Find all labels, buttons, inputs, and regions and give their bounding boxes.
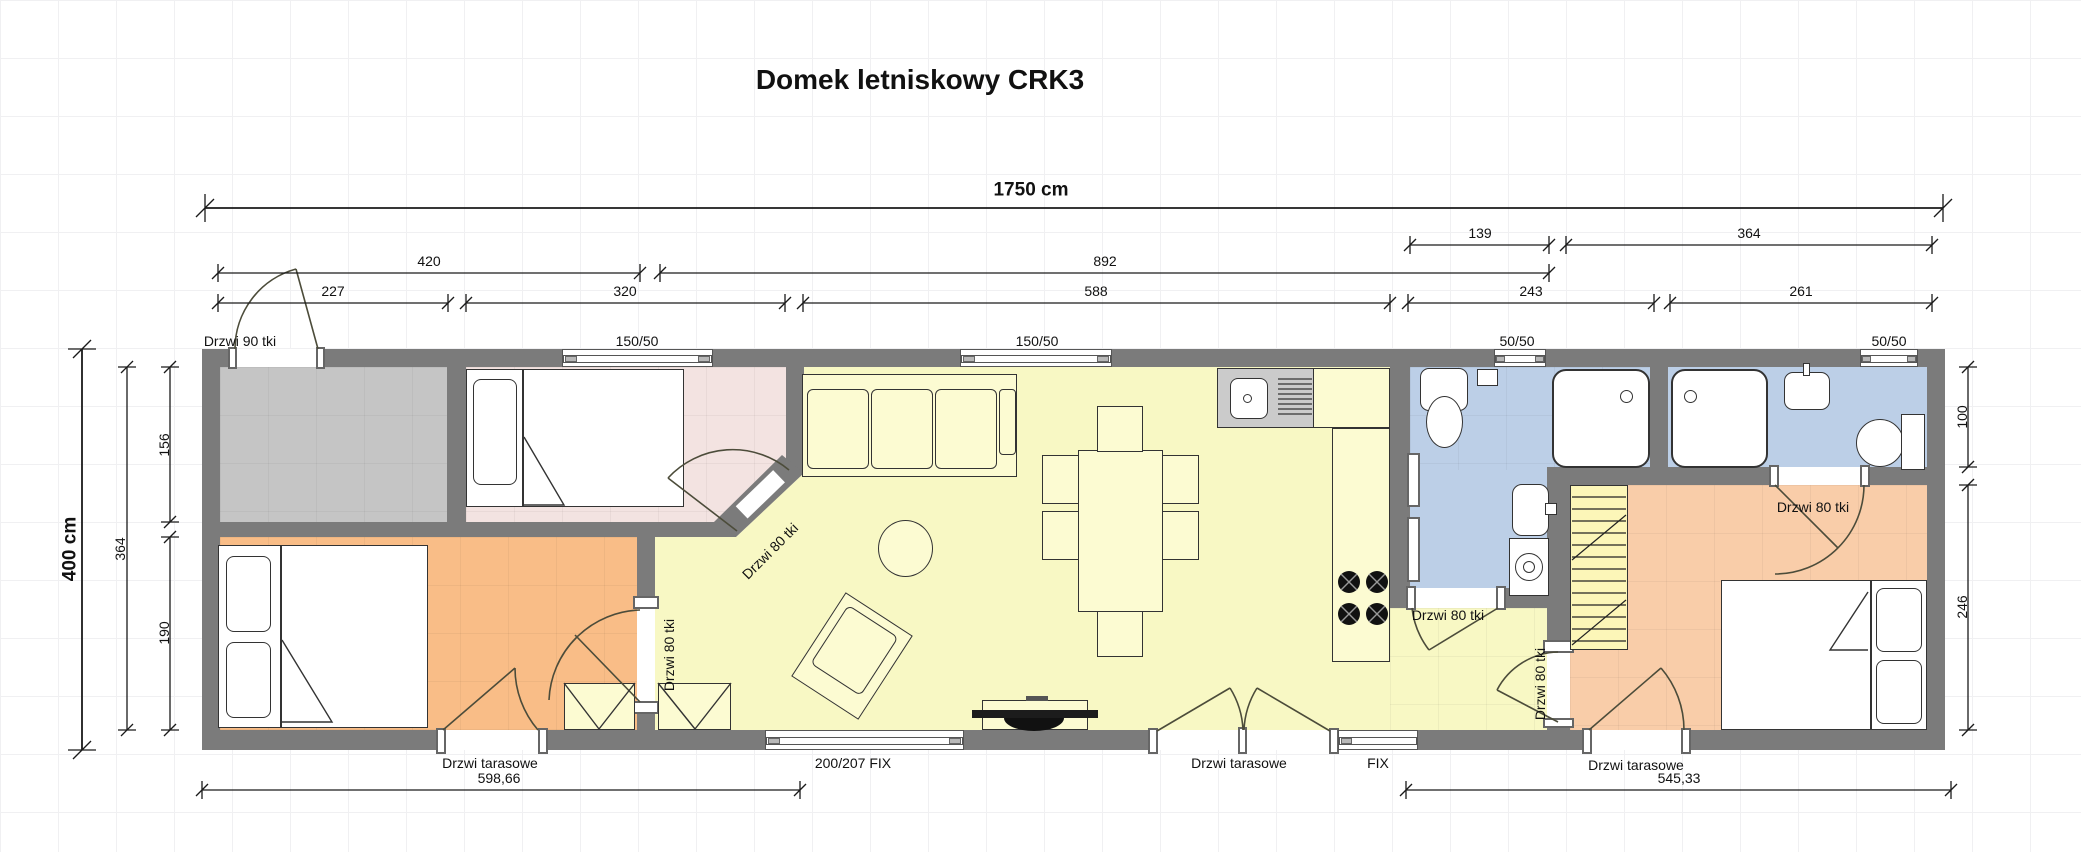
dim-545: 545,33: [1658, 771, 1701, 785]
label-door-bedroom2: Drzwi 80 tki: [1533, 648, 1547, 720]
floorplan-page: Domek letniskowy CRK3 1750 cm 139 364 42…: [0, 0, 2081, 852]
kitchen-drainer: [1278, 379, 1312, 414]
terrace-door1-leaf: [443, 668, 515, 730]
dim-139: 139: [1468, 226, 1491, 240]
label-window-living: 150/50: [1016, 334, 1059, 348]
stove-burners: [1338, 571, 1388, 625]
dim-246: 246: [1955, 595, 1969, 618]
door-bedroom2-leaf: [1497, 690, 1558, 722]
dim-100: 100: [1955, 405, 1969, 428]
door-bedroom-small-leaf: [575, 635, 640, 702]
terrace-door3-arc: [1661, 668, 1684, 730]
wardrobe-left-v2: [599, 683, 635, 729]
dim-420: 420: [417, 254, 440, 268]
dim-320: 320: [613, 284, 636, 298]
dim-total-height: 400 cm: [61, 517, 80, 581]
dim-227: 227: [321, 284, 344, 298]
door-bedroom1-leaf: [668, 478, 737, 531]
dim-156: 156: [157, 433, 171, 456]
label-terrace-door2: Drzwi tarasowe: [1191, 756, 1287, 770]
dim-261: 261: [1789, 284, 1812, 298]
ladder-rungs: [1572, 497, 1626, 645]
label-terrace-door1: Drzwi tarasowe: [442, 756, 538, 770]
dim-364-left: 364: [113, 537, 127, 560]
label-window-bath2: 50/50: [1871, 334, 1906, 348]
wardrobe-right-v2: [695, 683, 731, 729]
dim-598: 598,66: [478, 771, 521, 785]
terrace-door2-leaf-right: [1257, 688, 1330, 731]
terrace-door2-arc-right: [1244, 688, 1257, 730]
terrace-door2-leaf-left: [1157, 688, 1230, 731]
label-door-bath2: Drzwi 80 tki: [1777, 500, 1849, 514]
lineart-overlay: [0, 0, 2081, 852]
fireplace-hearth: [1004, 718, 1064, 731]
page-title: Domek letniskowy CRK3: [756, 66, 1084, 94]
bed-small-fold: [282, 640, 332, 722]
label-fix-large: 200/207 FIX: [815, 756, 891, 770]
dim-892: 892: [1093, 254, 1116, 268]
wardrobe-left-v1: [564, 683, 599, 729]
label-window-bath1: 50/50: [1499, 334, 1534, 348]
entry-door-leaf: [296, 269, 318, 349]
label-door-bedroom-small: Drzwi 80 tki: [662, 619, 676, 691]
label-fix-small: FIX: [1367, 756, 1389, 770]
label-window-bedroom1: 150/50: [616, 334, 659, 348]
dim-364-top: 364: [1737, 226, 1760, 240]
dim-243: 243: [1519, 284, 1542, 298]
terrace-door1-arc: [515, 668, 538, 730]
dim-total-width: 1750 cm: [993, 181, 1068, 200]
door-bedroom2-arc: [1497, 652, 1558, 690]
dim-190: 190: [157, 621, 171, 644]
label-entry-door: Drzwi 90 tki: [204, 334, 276, 348]
bed1-fold: [524, 437, 564, 505]
door-bath2-leaf: [1775, 485, 1838, 548]
terrace-door2-arc-left: [1230, 688, 1243, 730]
dim-588: 588: [1084, 284, 1107, 298]
terrace-door3-leaf: [1589, 668, 1661, 730]
label-door-bath1: Drzwi 80 tki: [1412, 608, 1484, 622]
door-bedroom1-arc: [668, 450, 789, 478]
bed2-fold: [1830, 592, 1868, 650]
